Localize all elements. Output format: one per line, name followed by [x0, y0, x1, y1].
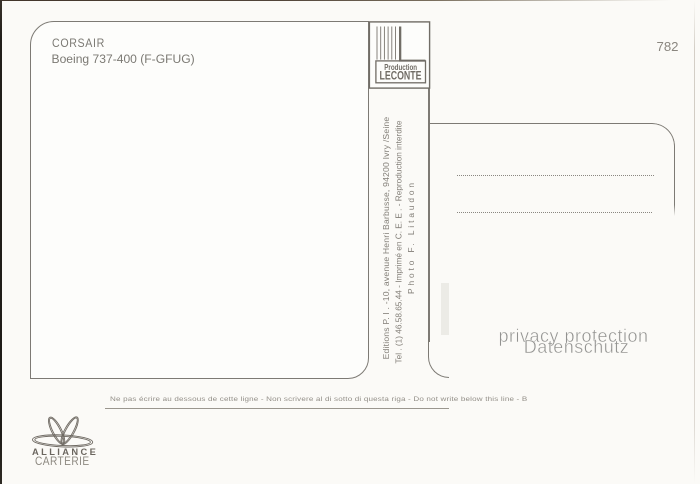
svg-text:LECONTE: LECONTE: [379, 71, 421, 83]
